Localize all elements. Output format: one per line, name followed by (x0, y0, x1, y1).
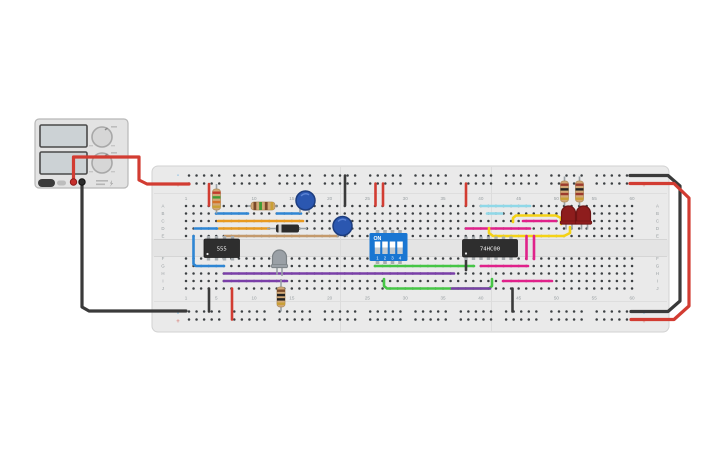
svg-text:E: E (656, 234, 659, 239)
svg-text:H: H (161, 271, 164, 276)
svg-text:H: H (656, 271, 659, 276)
svg-text:20: 20 (327, 196, 333, 201)
svg-text:45: 45 (516, 196, 522, 201)
psu-terminal-negative[interactable] (79, 179, 85, 185)
svg-text:25: 25 (365, 196, 371, 201)
svg-text:35: 35 (440, 196, 446, 201)
svg-text:F: F (656, 256, 659, 261)
svg-text:B: B (656, 211, 659, 216)
svg-text:E: E (162, 234, 165, 239)
svg-text:15: 15 (289, 196, 295, 201)
svg-text:F: F (162, 256, 165, 261)
ic-74hc00[interactable]: 74HC00 (463, 237, 518, 261)
svg-text:+: + (176, 319, 180, 325)
svg-text:C: C (656, 219, 659, 224)
svg-text:40: 40 (478, 296, 484, 301)
svg-text:74HC00: 74HC00 (480, 246, 500, 252)
svg-text:30: 30 (403, 296, 409, 301)
svg-text:ON: ON (374, 236, 382, 242)
svg-text:G: G (161, 264, 165, 269)
svg-text:1: 1 (185, 196, 188, 201)
dip-switch[interactable]: ON1234 (370, 230, 408, 264)
psu-display-1 (40, 125, 87, 147)
psu-knob-1[interactable] (92, 127, 112, 147)
svg-text:G: G (656, 264, 660, 269)
circuit-workspace: 1155101015152020252530303535404045455050… (0, 0, 725, 453)
svg-text:555: 555 (217, 246, 227, 252)
psu-terminal-positive[interactable] (70, 179, 76, 185)
psu-power-button[interactable] (38, 179, 55, 187)
svg-text:60: 60 (629, 296, 635, 301)
svg-text:B: B (162, 211, 165, 216)
svg-text:1: 1 (185, 296, 188, 301)
svg-text:40: 40 (478, 196, 484, 201)
svg-text:55: 55 (592, 296, 598, 301)
circuit-canvas: 1155101015152020252530303535404045455050… (0, 0, 725, 453)
svg-text:10: 10 (251, 196, 257, 201)
psu-display-2 (40, 152, 87, 174)
svg-text:J: J (162, 286, 164, 291)
ic-555[interactable]: 555 (204, 236, 240, 261)
svg-text:45: 45 (516, 296, 522, 301)
svg-text:60: 60 (629, 196, 635, 201)
svg-text:50: 50 (554, 196, 560, 201)
svg-text:-: - (177, 173, 179, 179)
svg-text:10: 10 (251, 296, 257, 301)
svg-text:J: J (656, 286, 658, 291)
svg-text:I: I (162, 279, 163, 284)
svg-text:35: 35 (440, 296, 446, 301)
svg-text:C: C (161, 219, 164, 224)
svg-text:5: 5 (215, 296, 218, 301)
svg-text:50: 50 (554, 296, 560, 301)
svg-text:15: 15 (289, 296, 295, 301)
svg-text:30: 30 (403, 196, 409, 201)
svg-text:D: D (656, 226, 659, 231)
svg-text:I: I (657, 279, 658, 284)
power-supply[interactable] (35, 119, 128, 188)
svg-text:20: 20 (327, 296, 333, 301)
svg-text:25: 25 (365, 296, 371, 301)
svg-text:A: A (656, 204, 659, 209)
svg-text:D: D (161, 226, 164, 231)
resistor-rowA[interactable] (248, 202, 278, 210)
svg-text:55: 55 (592, 196, 598, 201)
svg-text:A: A (162, 204, 165, 209)
